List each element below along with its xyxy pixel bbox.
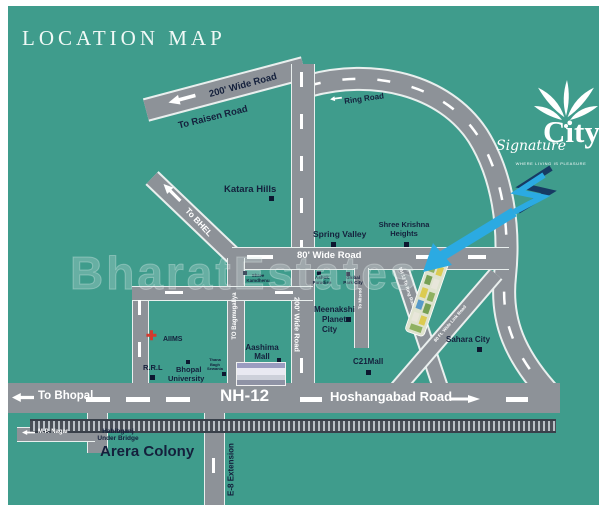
- place-aashima-mall: Aashima Mall: [243, 343, 281, 361]
- lane-dash: [416, 255, 446, 259]
- place-c21-mall: C21Mall: [353, 357, 383, 366]
- lane-dash: [126, 397, 150, 402]
- place-bhopal-university-2: University: [168, 374, 204, 383]
- place-global-park-city: Global Park City: [335, 275, 371, 285]
- place-katara-hills: Katara Hills: [224, 184, 276, 195]
- road-label-bagmugaliya: TO Bagmugaliya: [232, 276, 238, 356]
- lane-dash-vertical: [138, 300, 141, 380]
- lane-dash: [247, 255, 273, 259]
- place-text: Kamdhenu: [246, 278, 269, 283]
- place-text: Heights: [390, 229, 418, 238]
- lane-dash: [166, 397, 190, 402]
- logo-main-text: City: [543, 114, 600, 150]
- place-sahara-city: Sahara City: [446, 335, 490, 344]
- place-marker: [222, 372, 226, 376]
- lane-dash: [506, 397, 528, 402]
- place-text: Mall: [254, 352, 270, 361]
- place-meenakshi-planet: Planet: [322, 315, 346, 324]
- place-text: Habibganj: [102, 428, 133, 435]
- place-thana-bagh-sewania: Thana Bagh Sewania: [202, 358, 228, 372]
- logo-tagline: WHERE LIVING IS PLEASURE: [503, 161, 599, 166]
- place-marker: [317, 271, 321, 275]
- place-arera-colony: Arera Colony: [100, 443, 194, 460]
- place-bhopal-university: Bhopal: [176, 365, 201, 374]
- place-marker: [243, 271, 247, 275]
- place-marker: [477, 347, 482, 352]
- road-label-200-wide-vertical: 200' Wide Road: [293, 280, 302, 370]
- road-label-hoshangabad: Hoshangabad Road: [330, 389, 452, 404]
- lane-dash-vertical: [300, 72, 303, 247]
- place-meenakshi-city: City: [322, 325, 337, 334]
- road-label-nh12: NH-12: [220, 386, 269, 406]
- place-marker: [404, 242, 409, 247]
- road-label-to-bhopal: To Bhopal: [38, 390, 93, 402]
- place-ashok-paradise: Ashok Paradise: [305, 275, 339, 285]
- place-habibganj-under-bridge: Habibganj Under Bridge: [90, 428, 146, 443]
- road-label-80-wide: 80' Wide Road: [297, 250, 361, 261]
- place-text: Under Bridge: [97, 435, 138, 442]
- lane-dash-vertical: [212, 458, 215, 474]
- lane-dash: [468, 255, 486, 259]
- place-marker: [269, 196, 274, 201]
- place-text: Sewania: [207, 366, 223, 371]
- place-marker: [186, 360, 190, 364]
- place-text: Paradise: [313, 280, 332, 285]
- road-label-e8-extension: E-8 Extension: [227, 430, 236, 510]
- place-text: Aashima: [245, 343, 278, 352]
- place-rrl: R.R.L: [143, 363, 163, 372]
- aashima-mall-photo: [236, 362, 286, 386]
- lane-dash: [275, 291, 293, 294]
- place-shree-krishna-heights: Shree Krishna Heights: [378, 221, 430, 238]
- place-marker: [346, 317, 351, 322]
- place-marker: [150, 375, 155, 380]
- place-aiims: AIIMS: [163, 336, 182, 343]
- road-label-mp-nagar: M.P. Nagar: [38, 429, 68, 435]
- hospital-cross-icon: ✚: [146, 329, 157, 342]
- place-meenakshi: Meenakshi: [314, 305, 355, 314]
- place-marker: [331, 242, 336, 247]
- lane-dash: [300, 397, 322, 402]
- place-marker: [346, 272, 350, 276]
- lane-dash: [165, 291, 183, 294]
- place-spring-valley: Spring Valley: [313, 229, 366, 239]
- place-text: Park City: [343, 280, 363, 285]
- location-map-page: 200' Wide Road To Raisen Road Ring Road …: [0, 0, 604, 520]
- place-marker: [366, 370, 371, 375]
- page-title: LOCATION MAP: [22, 26, 226, 51]
